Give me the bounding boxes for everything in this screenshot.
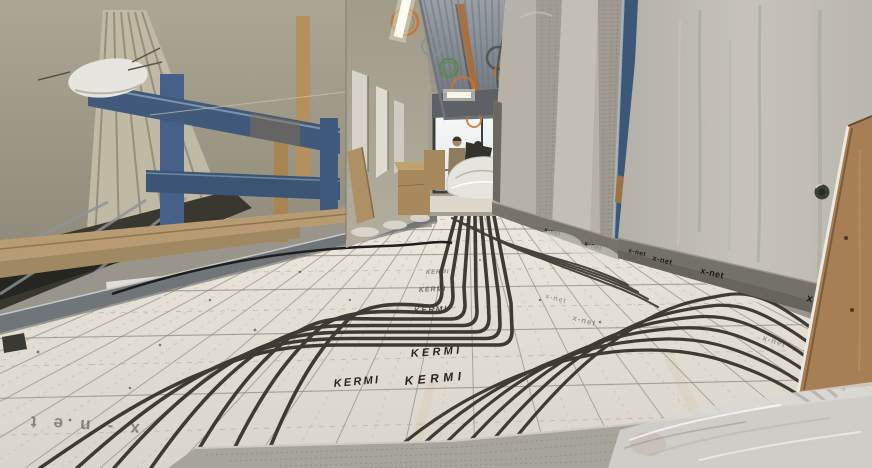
panel-screw	[844, 236, 848, 240]
panel-screw	[850, 308, 854, 312]
kermi-print: KERMI	[426, 269, 450, 276]
photo-canvas: KERMI KERMI KERMI KERMI KERMI KERMI x-ne…	[0, 0, 872, 468]
guard-rail-post	[320, 118, 338, 215]
socket-hole	[815, 185, 830, 200]
construction-corridor-photo: KERMI KERMI KERMI KERMI KERMI KERMI x-ne…	[0, 0, 872, 468]
wall-opening	[376, 86, 388, 178]
fluorescent-light	[443, 89, 475, 101]
cardboard-box	[424, 150, 445, 190]
